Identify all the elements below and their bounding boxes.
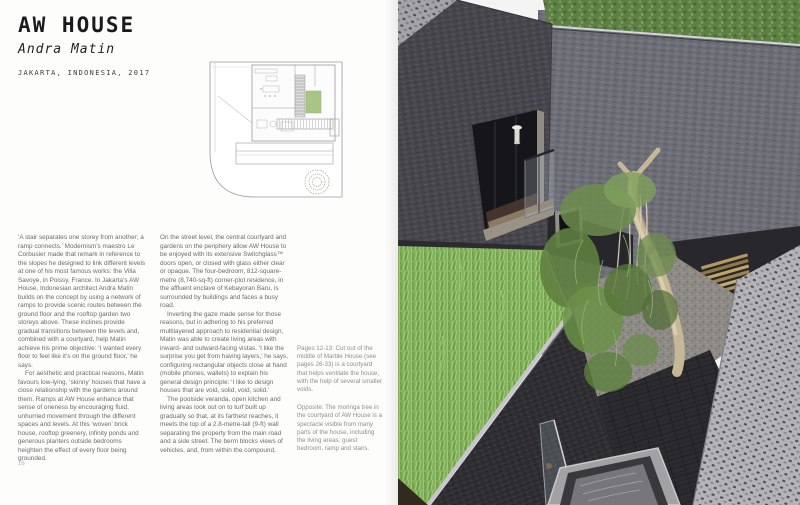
glass-railing (525, 150, 554, 218)
body-paragraph-1: ‘A stair separates one storey from anoth… (18, 234, 146, 370)
body-paragraph-3: On the street level, the central courtya… (160, 234, 291, 311)
site-plan-drawing (203, 56, 349, 204)
project-meta: JAKARTA, INDONESIA, 2017 (18, 69, 150, 77)
courtyard-photo (398, 0, 800, 505)
page-title: AW HOUSE (18, 13, 135, 37)
body-paragraph-5: The poolside veranda, open kitchen and l… (160, 396, 291, 456)
page-number: 16 (18, 461, 25, 467)
body-paragraph-2: For aesthetic and practical reasons, Mat… (18, 370, 146, 464)
caption-pages-12-13: Pages 12-13: Cut out of the middle of Ma… (297, 345, 383, 394)
caption-opposite: Opposite: The moringa tree in the courty… (297, 404, 383, 453)
body-column-2: On the street level, the central courtya… (160, 234, 291, 455)
body-paragraph-4: Inverting the gaze made sense for those … (160, 311, 291, 396)
architect-name: Andra Matin (18, 42, 115, 57)
plan-courtyard-green (306, 91, 321, 113)
page-gutter (384, 0, 398, 505)
plan-stairs (295, 75, 305, 117)
plan-building (252, 65, 335, 141)
body-column-1: ‘A stair separates one storey from anoth… (18, 234, 146, 464)
left-page: AW HOUSE Andra Matin JAKARTA, INDONESIA,… (0, 0, 398, 505)
caption-column: Pages 12-13: Cut out of the middle of Ma… (297, 345, 383, 463)
